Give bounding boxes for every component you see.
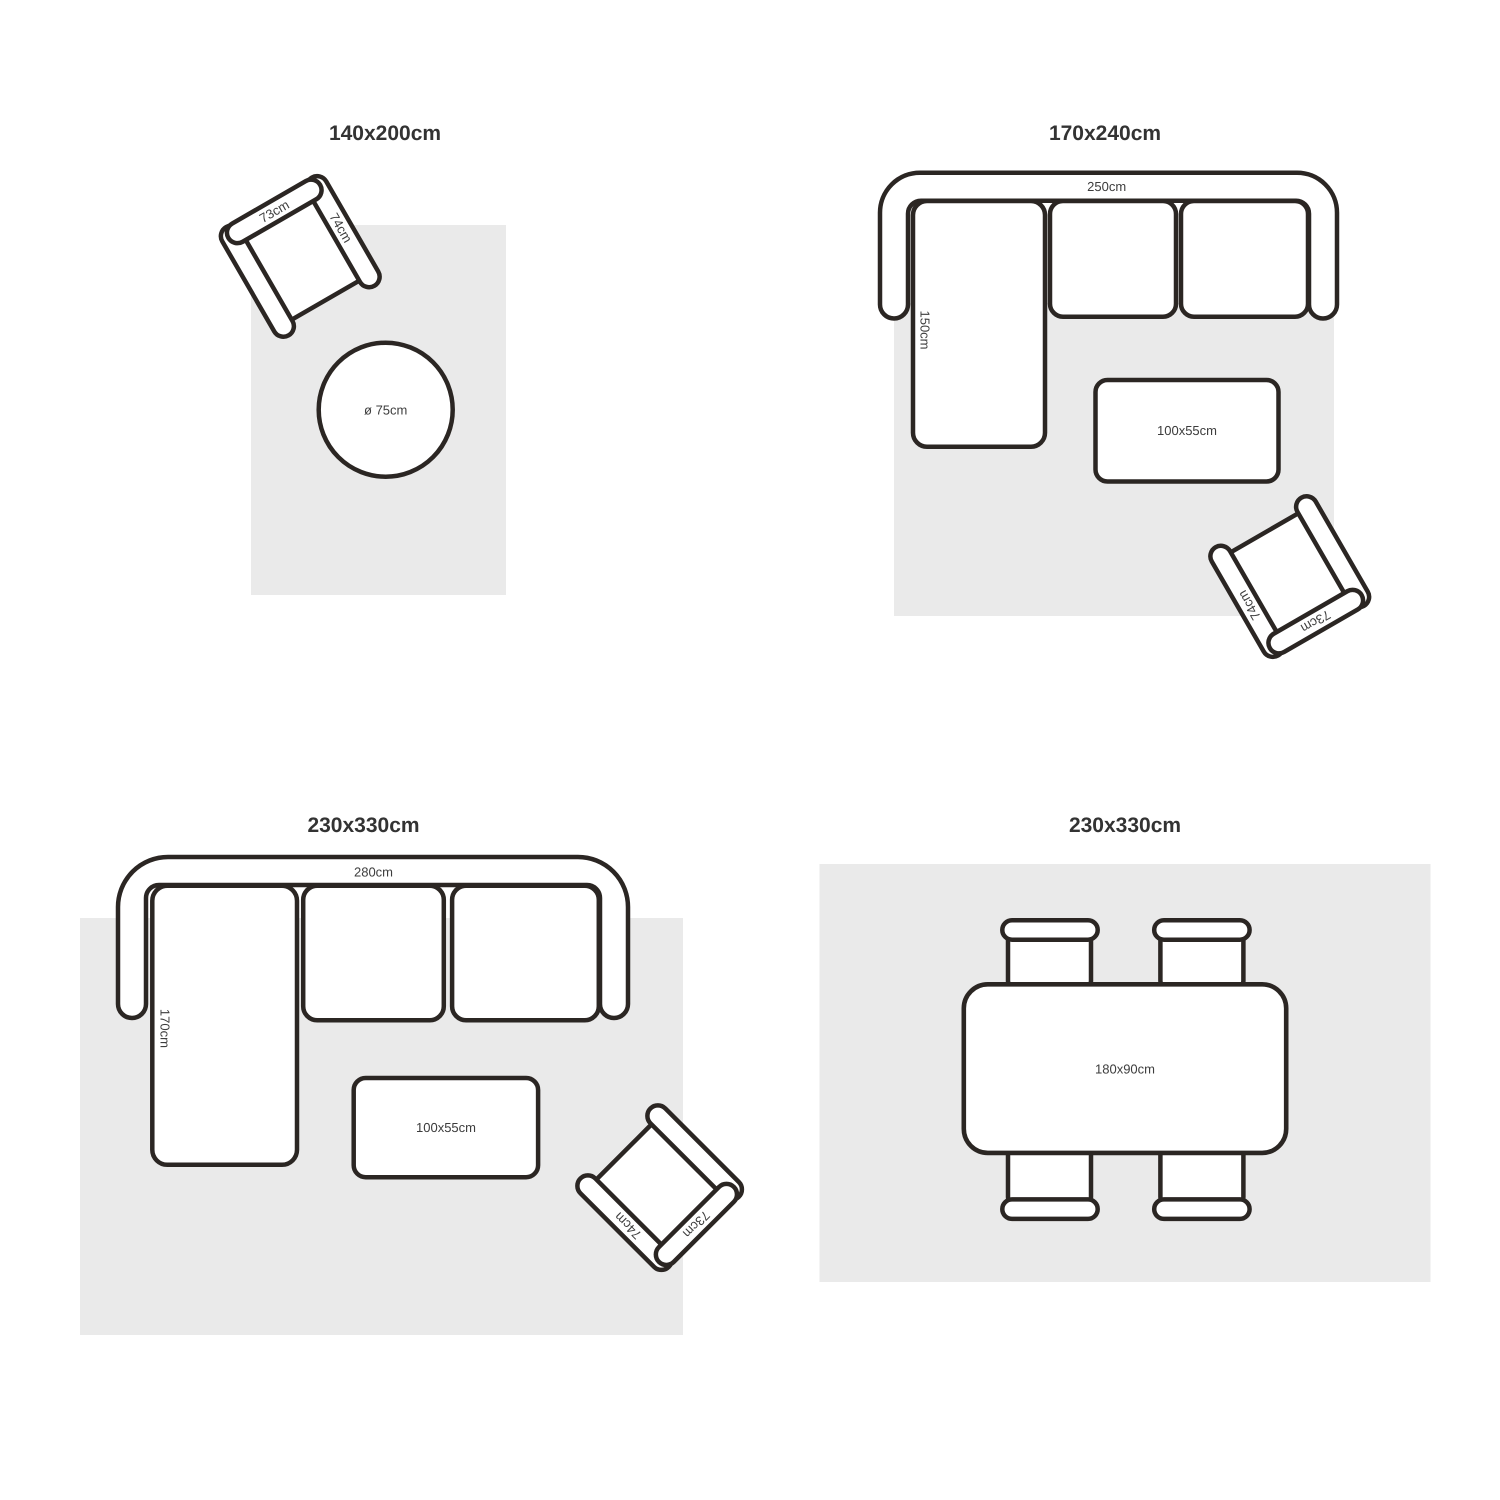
svg-text:170cm: 170cm bbox=[157, 1009, 172, 1048]
svg-text:230x330cm: 230x330cm bbox=[1069, 814, 1181, 837]
svg-text:150cm: 150cm bbox=[918, 310, 933, 349]
svg-text:100x55cm: 100x55cm bbox=[416, 1120, 476, 1135]
svg-text:250cm: 250cm bbox=[1087, 179, 1126, 194]
svg-text:ø 75cm: ø 75cm bbox=[364, 403, 407, 418]
svg-text:280cm: 280cm bbox=[354, 865, 393, 880]
svg-text:140x200cm: 140x200cm bbox=[329, 122, 441, 145]
svg-text:100x55cm: 100x55cm bbox=[1157, 423, 1217, 438]
svg-text:180x90cm: 180x90cm bbox=[1095, 1062, 1155, 1077]
svg-text:170x240cm: 170x240cm bbox=[1049, 122, 1161, 145]
svg-text:230x330cm: 230x330cm bbox=[307, 814, 419, 837]
